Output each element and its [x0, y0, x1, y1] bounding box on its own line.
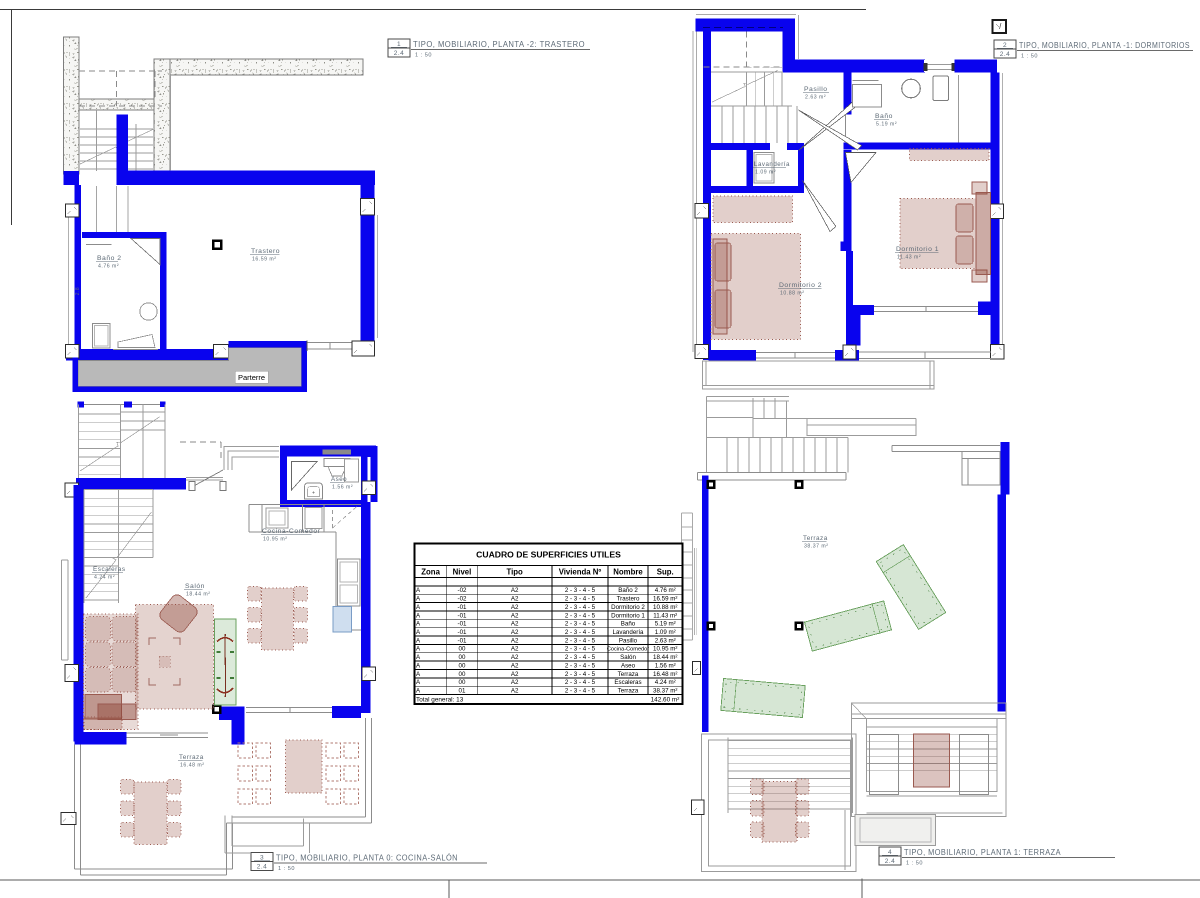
svg-text:A2: A2: [511, 637, 519, 644]
svg-text:2 - 3 - 4 - 5: 2 - 3 - 4 - 5: [565, 621, 596, 628]
svg-text:A2: A2: [511, 688, 519, 695]
svg-text:A2: A2: [511, 612, 519, 619]
svg-text:-02: -02: [458, 587, 468, 594]
svg-text:Salón: Salón: [185, 583, 205, 590]
svg-text:4.76 m²: 4.76 m²: [655, 587, 676, 594]
svg-text:-01: -01: [458, 629, 468, 636]
svg-text:Pasillo: Pasillo: [804, 86, 828, 93]
svg-text:5.19 m²: 5.19 m²: [655, 621, 676, 628]
svg-text:Aseo: Aseo: [331, 476, 347, 483]
svg-text:1.09 m²: 1.09 m²: [655, 629, 676, 636]
svg-text:2 - 3 - 4 - 5: 2 - 3 - 4 - 5: [565, 654, 596, 661]
svg-text:11.43 m²: 11.43 m²: [897, 255, 921, 261]
svg-text:Total general: 13: Total general: 13: [416, 697, 464, 704]
svg-text:01: 01: [459, 688, 466, 695]
svg-text:10.95 m²: 10.95 m²: [653, 646, 677, 653]
svg-text:16.48 m²: 16.48 m²: [180, 763, 204, 769]
svg-text:10.88 m²: 10.88 m²: [653, 604, 677, 611]
svg-text:Dormitorio 1: Dormitorio 1: [611, 612, 645, 619]
svg-text:2 - 3 - 4 - 5: 2 - 3 - 4 - 5: [565, 629, 596, 636]
svg-text:2 - 3 - 4 - 5: 2 - 3 - 4 - 5: [565, 637, 596, 644]
svg-text:2.4: 2.4: [394, 50, 405, 57]
svg-text:2.63 m²: 2.63 m²: [805, 95, 826, 101]
svg-text:1.56 m²: 1.56 m²: [332, 485, 353, 491]
svg-text:A2: A2: [511, 654, 519, 661]
svg-text:TIPO, MOBILIARIO, PLANTA 0: CO: TIPO, MOBILIARIO, PLANTA 0: COCINA-SALÓN: [276, 854, 458, 863]
svg-text:Baño 2: Baño 2: [618, 587, 638, 594]
svg-text:TIPO, MOBILIARIO, PLANTA -2: T: TIPO, MOBILIARIO, PLANTA -2: TRASTERO: [413, 40, 585, 49]
svg-text:A2: A2: [511, 629, 519, 636]
svg-text:10.95 m²: 10.95 m²: [263, 537, 287, 543]
svg-text:11.43 m²: 11.43 m²: [653, 612, 677, 619]
svg-text:Tipo: Tipo: [506, 567, 523, 576]
svg-text:00: 00: [459, 654, 466, 661]
svg-text:1 : 50: 1 : 50: [906, 861, 923, 867]
svg-text:A2: A2: [511, 621, 519, 628]
svg-text:Dormitorio 1: Dormitorio 1: [896, 246, 939, 253]
svg-text:TIPO, MOBILIARIO, PLANTA 1: TE: TIPO, MOBILIARIO, PLANTA 1: TERRAZA: [904, 848, 1061, 857]
svg-text:Lavandería: Lavandería: [754, 161, 790, 168]
svg-text:-01: -01: [458, 637, 468, 644]
svg-text:A2: A2: [511, 662, 519, 669]
svg-text:18.44 m²: 18.44 m²: [653, 654, 677, 661]
svg-text:2 - 3 - 4 - 5: 2 - 3 - 4 - 5: [565, 688, 596, 695]
svg-text:Zona: Zona: [421, 567, 440, 576]
svg-text:Baño: Baño: [621, 621, 636, 628]
svg-text:2.4: 2.4: [885, 858, 896, 865]
svg-text:Nombre: Nombre: [613, 567, 643, 576]
svg-text:Pasillo: Pasillo: [619, 637, 638, 644]
svg-text:Nivel: Nivel: [453, 567, 472, 576]
svg-text:-02: -02: [458, 596, 468, 603]
svg-text:2.4: 2.4: [257, 864, 268, 871]
svg-text:Aseo: Aseo: [621, 662, 636, 669]
svg-text:4.24 m²: 4.24 m²: [94, 575, 115, 581]
svg-text:Terraza: Terraza: [618, 671, 639, 678]
svg-text:1.56 m²: 1.56 m²: [655, 662, 676, 669]
svg-text:TIPO, MOBILIARIO, PLANTA -1: D: TIPO, MOBILIARIO, PLANTA -1: DORMITORIOS: [1019, 41, 1190, 50]
svg-text:A2: A2: [511, 679, 519, 686]
svg-text:2.63 m²: 2.63 m²: [655, 637, 676, 644]
svg-text:A2: A2: [511, 671, 519, 678]
svg-text:2 - 3 - 4 - 5: 2 - 3 - 4 - 5: [565, 671, 596, 678]
svg-text:2 - 3 - 4 - 5: 2 - 3 - 4 - 5: [565, 662, 596, 669]
svg-text:00: 00: [459, 662, 466, 669]
svg-text:16.59 m²: 16.59 m²: [252, 257, 276, 263]
svg-text:2 - 3 - 4 - 5: 2 - 3 - 4 - 5: [565, 679, 596, 686]
svg-text:2 - 3 - 4 - 5: 2 - 3 - 4 - 5: [565, 646, 596, 653]
svg-text:1.09 m²: 1.09 m²: [755, 170, 776, 176]
svg-text:18.44 m²: 18.44 m²: [186, 592, 210, 598]
svg-text:Dormitorio 2: Dormitorio 2: [779, 282, 822, 289]
svg-text:Sup.: Sup.: [657, 567, 674, 576]
svg-text:16.59 m²: 16.59 m²: [653, 596, 677, 603]
svg-text:Parterre: Parterre: [238, 373, 265, 382]
svg-text:Baño 2: Baño 2: [97, 255, 122, 262]
svg-text:A2: A2: [511, 646, 519, 653]
svg-text:Terraza: Terraza: [179, 754, 204, 761]
svg-text:2 - 3 - 4 - 5: 2 - 3 - 4 - 5: [565, 587, 596, 594]
svg-text:2.4: 2.4: [1000, 51, 1011, 58]
svg-text:00: 00: [459, 671, 466, 678]
svg-text:1 : 50: 1 : 50: [415, 53, 432, 59]
svg-text:Escaleras: Escaleras: [614, 679, 641, 686]
svg-text:00: 00: [459, 679, 466, 686]
svg-text:5.19 m²: 5.19 m²: [876, 122, 897, 128]
svg-text:142.60 m²: 142.60 m²: [651, 697, 680, 704]
svg-text:Terraza: Terraza: [803, 535, 828, 542]
svg-text:-01: -01: [458, 604, 468, 611]
svg-text:Vivienda Nº: Vivienda Nº: [559, 567, 602, 576]
svg-text:4.76 m²: 4.76 m²: [98, 264, 119, 270]
svg-text:Terraza: Terraza: [618, 688, 639, 695]
svg-text:Cocina-Comedor: Cocina-Comedor: [607, 647, 649, 653]
svg-text:A2: A2: [511, 587, 519, 594]
svg-text:A2: A2: [511, 596, 519, 603]
svg-text:2 - 3 - 4 - 5: 2 - 3 - 4 - 5: [565, 604, 596, 611]
svg-text:Trastero: Trastero: [251, 248, 280, 255]
svg-text:4.24 m²: 4.24 m²: [655, 679, 676, 686]
svg-text:Lavandería: Lavandería: [613, 629, 645, 636]
svg-text:A2: A2: [511, 604, 519, 611]
svg-text:38.37 m²: 38.37 m²: [804, 544, 828, 550]
svg-text:1 : 50: 1 : 50: [1021, 54, 1038, 60]
svg-text:2.8: 2.8: [75, 287, 81, 295]
svg-text:10.88 m²: 10.88 m²: [780, 291, 804, 297]
svg-text:2 - 3 - 4 - 5: 2 - 3 - 4 - 5: [565, 612, 596, 619]
svg-text:2 - 3 - 4 - 5: 2 - 3 - 4 - 5: [565, 596, 596, 603]
svg-text:Escaleras: Escaleras: [93, 566, 126, 573]
svg-text:Trastero: Trastero: [617, 596, 640, 603]
svg-text:Salón: Salón: [620, 654, 636, 661]
svg-text:16.48 m²: 16.48 m²: [653, 671, 677, 678]
svg-text:1 : 50: 1 : 50: [278, 866, 295, 872]
svg-text:CUADRO DE SUPERFICIES UTILES: CUADRO DE SUPERFICIES UTILES: [476, 550, 621, 560]
svg-text:-01: -01: [458, 621, 468, 628]
svg-text:Baño: Baño: [875, 113, 893, 120]
svg-text:-01: -01: [458, 612, 468, 619]
svg-text:00: 00: [459, 646, 466, 653]
svg-text:Dormitorio 2: Dormitorio 2: [611, 604, 645, 611]
svg-text:38.37 m²: 38.37 m²: [653, 688, 677, 695]
svg-text:Cocina-Comedor: Cocina-Comedor: [262, 528, 321, 535]
